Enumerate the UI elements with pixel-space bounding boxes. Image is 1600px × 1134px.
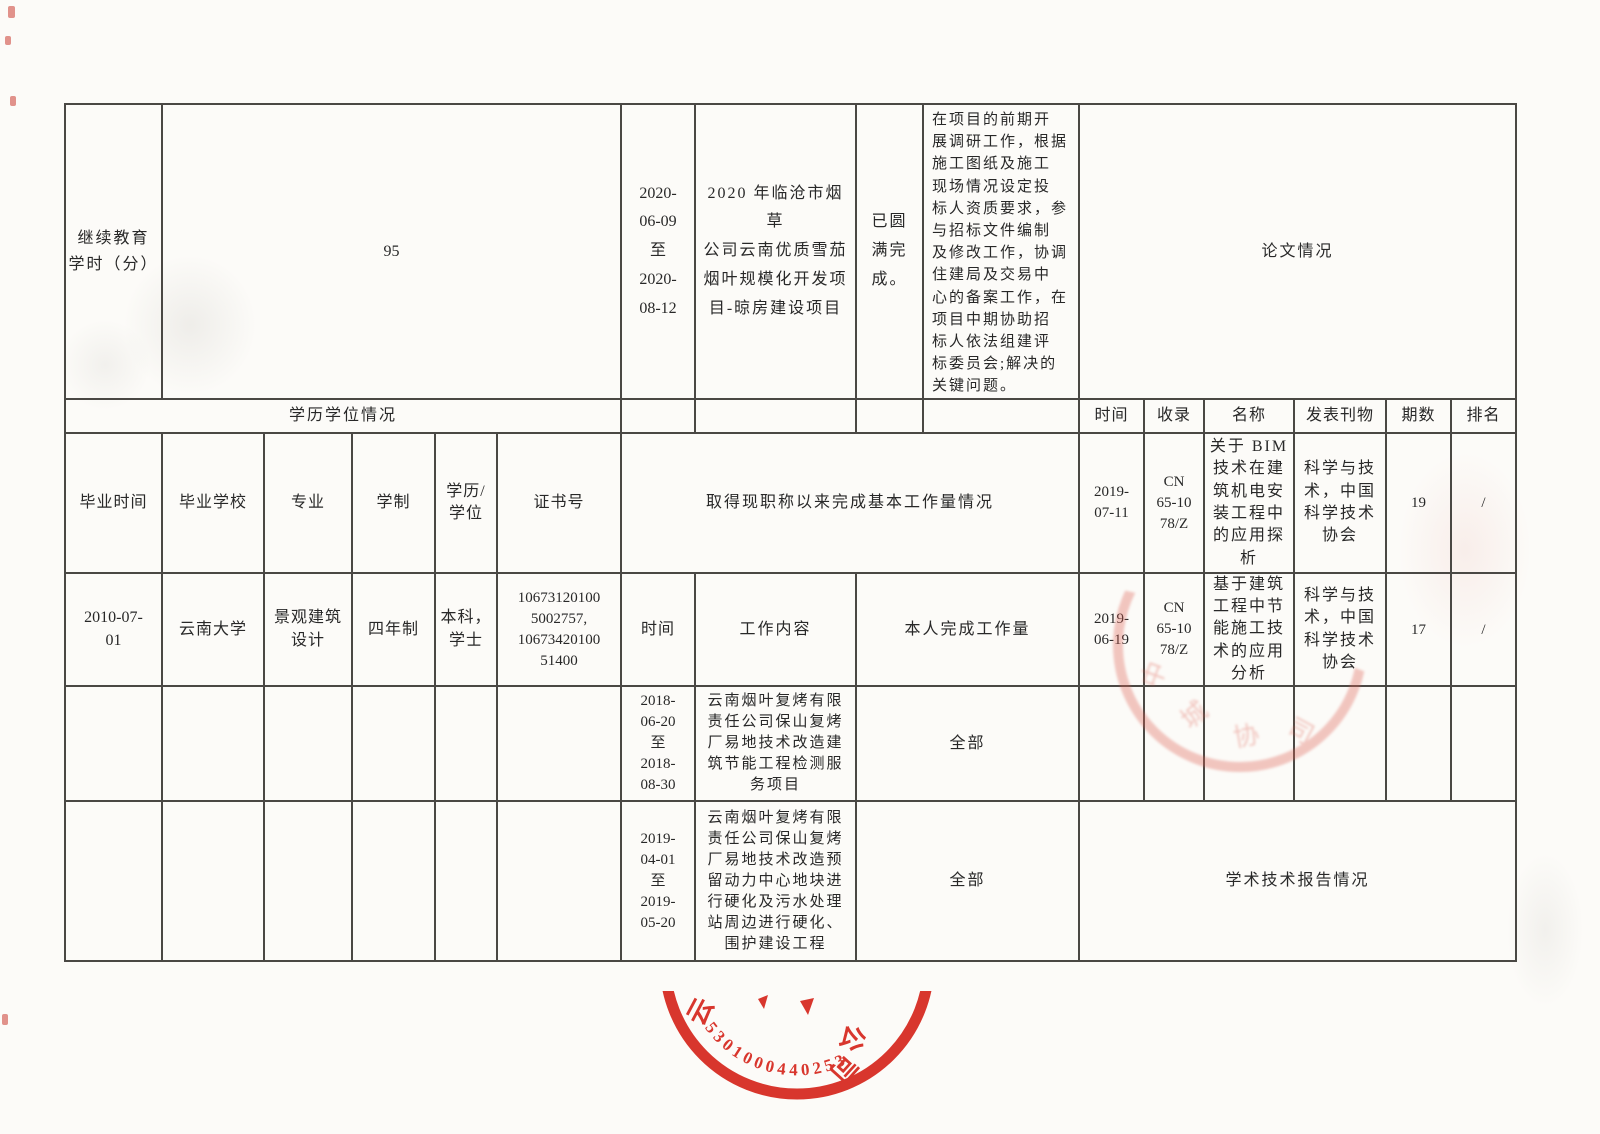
empty-cell: [161, 685, 265, 802]
cell-paper1-journal: 科学与技 术，中国 科学技术 协会: [1293, 432, 1387, 574]
cell-papers-header-time: 时间: [1078, 398, 1145, 434]
cell-project-period: 2020- 06-09 至 2020- 08-12: [620, 103, 696, 400]
seal-char: 公: [834, 1021, 870, 1055]
seal-mark: [800, 998, 814, 1015]
empty-cell: [496, 685, 622, 802]
cell-paper1-issue: 19: [1385, 432, 1452, 574]
seal-char: 司: [824, 1049, 863, 1088]
cell-work1-amount: 全部: [855, 685, 1080, 802]
seal-mark: [758, 995, 768, 1009]
cell-continuing-education-label: 继续教育 学时（分）: [64, 103, 163, 400]
cell-papers-section-title: 论文情况: [1078, 103, 1517, 400]
cell-paper2-journal: 科学与技 术，中国 科学技术 协会: [1293, 572, 1387, 687]
empty-cell: [1385, 685, 1452, 802]
empty-cell: [351, 685, 436, 802]
official-seal-bottom: 5301000440253 云 公 司: [640, 935, 970, 1120]
seal-number: 5301000440253: [701, 1018, 851, 1079]
empty-cell: [434, 685, 498, 802]
cell-edu-certificate-no: 10673120100 5002757, 10673420100 51400: [496, 572, 622, 687]
cell-edu-major: 景观建筑 设计: [263, 572, 353, 687]
cell-paper1-index: CN 65-10 78/Z: [1143, 432, 1205, 574]
cell-work2-amount: 全部: [855, 800, 1080, 962]
empty-cell: [64, 685, 163, 802]
empty-cell: [263, 800, 353, 962]
cell-paper2-name: 基于建筑 工程中节 能施工技 术的应用 分析: [1203, 572, 1295, 687]
empty-cell: [1143, 685, 1205, 802]
cell-edu-school: 云南大学: [161, 572, 265, 687]
red-speck: [10, 96, 16, 106]
cell-paper1-name: 关于 BIM 技术在建 筑机电安 装工程中 的应用探 析: [1203, 432, 1295, 574]
empty-cell: [1203, 685, 1295, 802]
cell-work1-content: 云南烟叶复烤有限 责任公司保山复烤 厂易地技术改造建 筑节能工程检测服 务项目: [694, 685, 857, 802]
cell-edu-header-major: 专业: [263, 432, 353, 574]
cell-project-duty: 在项目的前期开 展调研工作，根据 施工图纸及施工 现场情况设定投 标人资质要求，…: [922, 103, 1080, 400]
cell-edu-graduation-date: 2010-07- 01: [64, 572, 163, 687]
cell-edu-header-certificate: 证书号: [496, 432, 622, 574]
cell-reports-section-title: 学术技术报告情况: [1078, 800, 1517, 962]
cell-papers-header-issue: 期数: [1385, 398, 1452, 434]
cell-papers-header-rank: 排名: [1450, 398, 1517, 434]
empty-cell: [351, 800, 436, 962]
cell-workload-header-amount: 本人完成工作量: [855, 572, 1080, 687]
empty-cell: [922, 398, 1080, 434]
seal-char: 云: [682, 993, 720, 1030]
cell-workload-section-title: 取得现职称以来完成基本工作量情况: [620, 432, 1080, 574]
empty-cell: [263, 685, 353, 802]
cell-paper2-issue: 17: [1385, 572, 1452, 687]
red-speck: [2, 1014, 8, 1025]
cell-paper2-rank: /: [1450, 572, 1517, 687]
cell-continuing-education-value: 95: [161, 103, 622, 400]
cell-project-name: 2020 年临沧市烟草 公司云南优质雪茄 烟叶规模化开发项 目-晾房建设项目: [694, 103, 857, 400]
red-speck: [8, 6, 15, 18]
empty-cell: [496, 800, 622, 962]
cell-papers-header-journal: 发表刊物: [1293, 398, 1387, 434]
cell-paper1-rank: /: [1450, 432, 1517, 574]
cell-paper1-time: 2019- 07-11: [1078, 432, 1145, 574]
cell-edu-header-duration: 学制: [351, 432, 436, 574]
empty-cell: [855, 398, 924, 434]
empty-cell: [64, 800, 163, 962]
cell-edu-header-graduation-date: 毕业时间: [64, 432, 163, 574]
scanned-form-page: 继续教育 学时（分） 95 2020- 06-09 至 2020- 08-12 …: [0, 0, 1600, 1134]
cell-work1-time: 2018- 06-20 至 2018- 08-30: [620, 685, 696, 802]
empty-cell: [1078, 685, 1145, 802]
cell-papers-header-name: 名称: [1203, 398, 1295, 434]
cell-edu-duration: 四年制: [351, 572, 436, 687]
cell-edu-degree: 本科， 学士: [434, 572, 498, 687]
cell-edu-header-degree: 学历/ 学位: [434, 432, 498, 574]
cell-workload-header-time: 时间: [620, 572, 696, 687]
empty-cell: [620, 398, 696, 434]
cell-paper2-time: 2019- 06-19: [1078, 572, 1145, 687]
empty-cell: [161, 800, 265, 962]
cell-paper2-index: CN 65-10 78/Z: [1143, 572, 1205, 687]
cell-edu-header-school: 毕业学校: [161, 432, 265, 574]
red-speck: [5, 36, 11, 45]
cell-work2-content: 云南烟叶复烤有限 责任公司保山复烤 厂易地技术改造预 留动力中心地块进 行硬化及…: [694, 800, 857, 962]
cell-project-status: 已圆 满完 成。: [855, 103, 924, 400]
cell-work2-time: 2019- 04-01 至 2019- 05-20: [620, 800, 696, 962]
cell-papers-header-index: 收录: [1143, 398, 1205, 434]
empty-cell: [1450, 685, 1517, 802]
cell-education-section-title: 学历学位情况: [64, 398, 622, 434]
empty-cell: [694, 398, 857, 434]
empty-cell: [434, 800, 498, 962]
empty-cell: [1293, 685, 1387, 802]
cell-workload-header-content: 工作内容: [694, 572, 857, 687]
